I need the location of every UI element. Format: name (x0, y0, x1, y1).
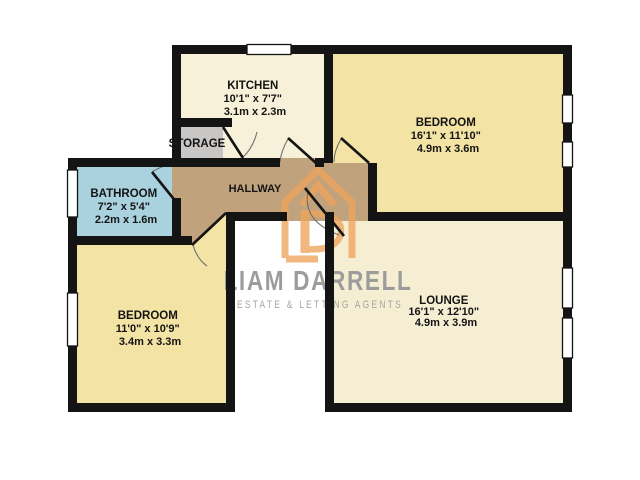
wall-kitchen-right (324, 45, 333, 163)
lounge-label: LOUNGE 16'1" x 12'10" 4.9m x 3.9m (408, 291, 483, 329)
kitchen-window (247, 45, 291, 55)
lounge-window-1 (563, 268, 573, 308)
bedroom-top-right-window-2 (563, 142, 573, 167)
watermark-brand: LIAM DARRELL (224, 265, 413, 296)
wall-bath-storage-kitchen-band (68, 158, 280, 167)
floorplan-svg: LIAM DARRELL ESTATE & LETTING AGENTS KIT… (0, 0, 640, 480)
room-floors (77, 54, 563, 403)
bedroom-bottom-left-window (68, 293, 78, 346)
wall-bedroom-left-right (226, 212, 235, 412)
bedroom-top-right-window-1 (563, 95, 573, 123)
wall-bottom-right-wing (325, 403, 572, 412)
wall-storage-top (172, 118, 232, 127)
bedroom-bottom-left-label: BEDROOM 11'0" x 10'9" 3.4m x 3.3m (116, 306, 184, 348)
wall-lounge-left (325, 212, 334, 412)
watermark-tagline: ESTATE & LETTING AGENTS (237, 299, 403, 311)
floorplan-page: LIAM DARRELL ESTATE & LETTING AGENTS KIT… (0, 0, 640, 480)
wall-bedroom-lounge-divider (368, 212, 572, 221)
wall-kitchen-door-stub (315, 158, 324, 167)
wall-hallway-bottom (226, 212, 287, 221)
wall-bathroom-right-stub (172, 198, 181, 245)
lounge-window-2 (563, 318, 573, 358)
bathroom-window (68, 170, 78, 217)
bedroom-top-right-label: BEDROOM 16'1" x 11'10" 4.9m x 3.6m (411, 113, 486, 155)
kitchen-label: KITCHEN 10'1" x 7'7" 3.1m x 2.3m (224, 76, 287, 118)
wall-bottom-left-wing (68, 403, 235, 412)
wall-top (172, 45, 572, 54)
hallway-label: HALLWAY (229, 183, 282, 195)
wall-kitchen-left (172, 45, 181, 167)
bathroom-label: BATHROOM 7'2" x 5'4" 2.2m x 1.6m (90, 184, 161, 226)
